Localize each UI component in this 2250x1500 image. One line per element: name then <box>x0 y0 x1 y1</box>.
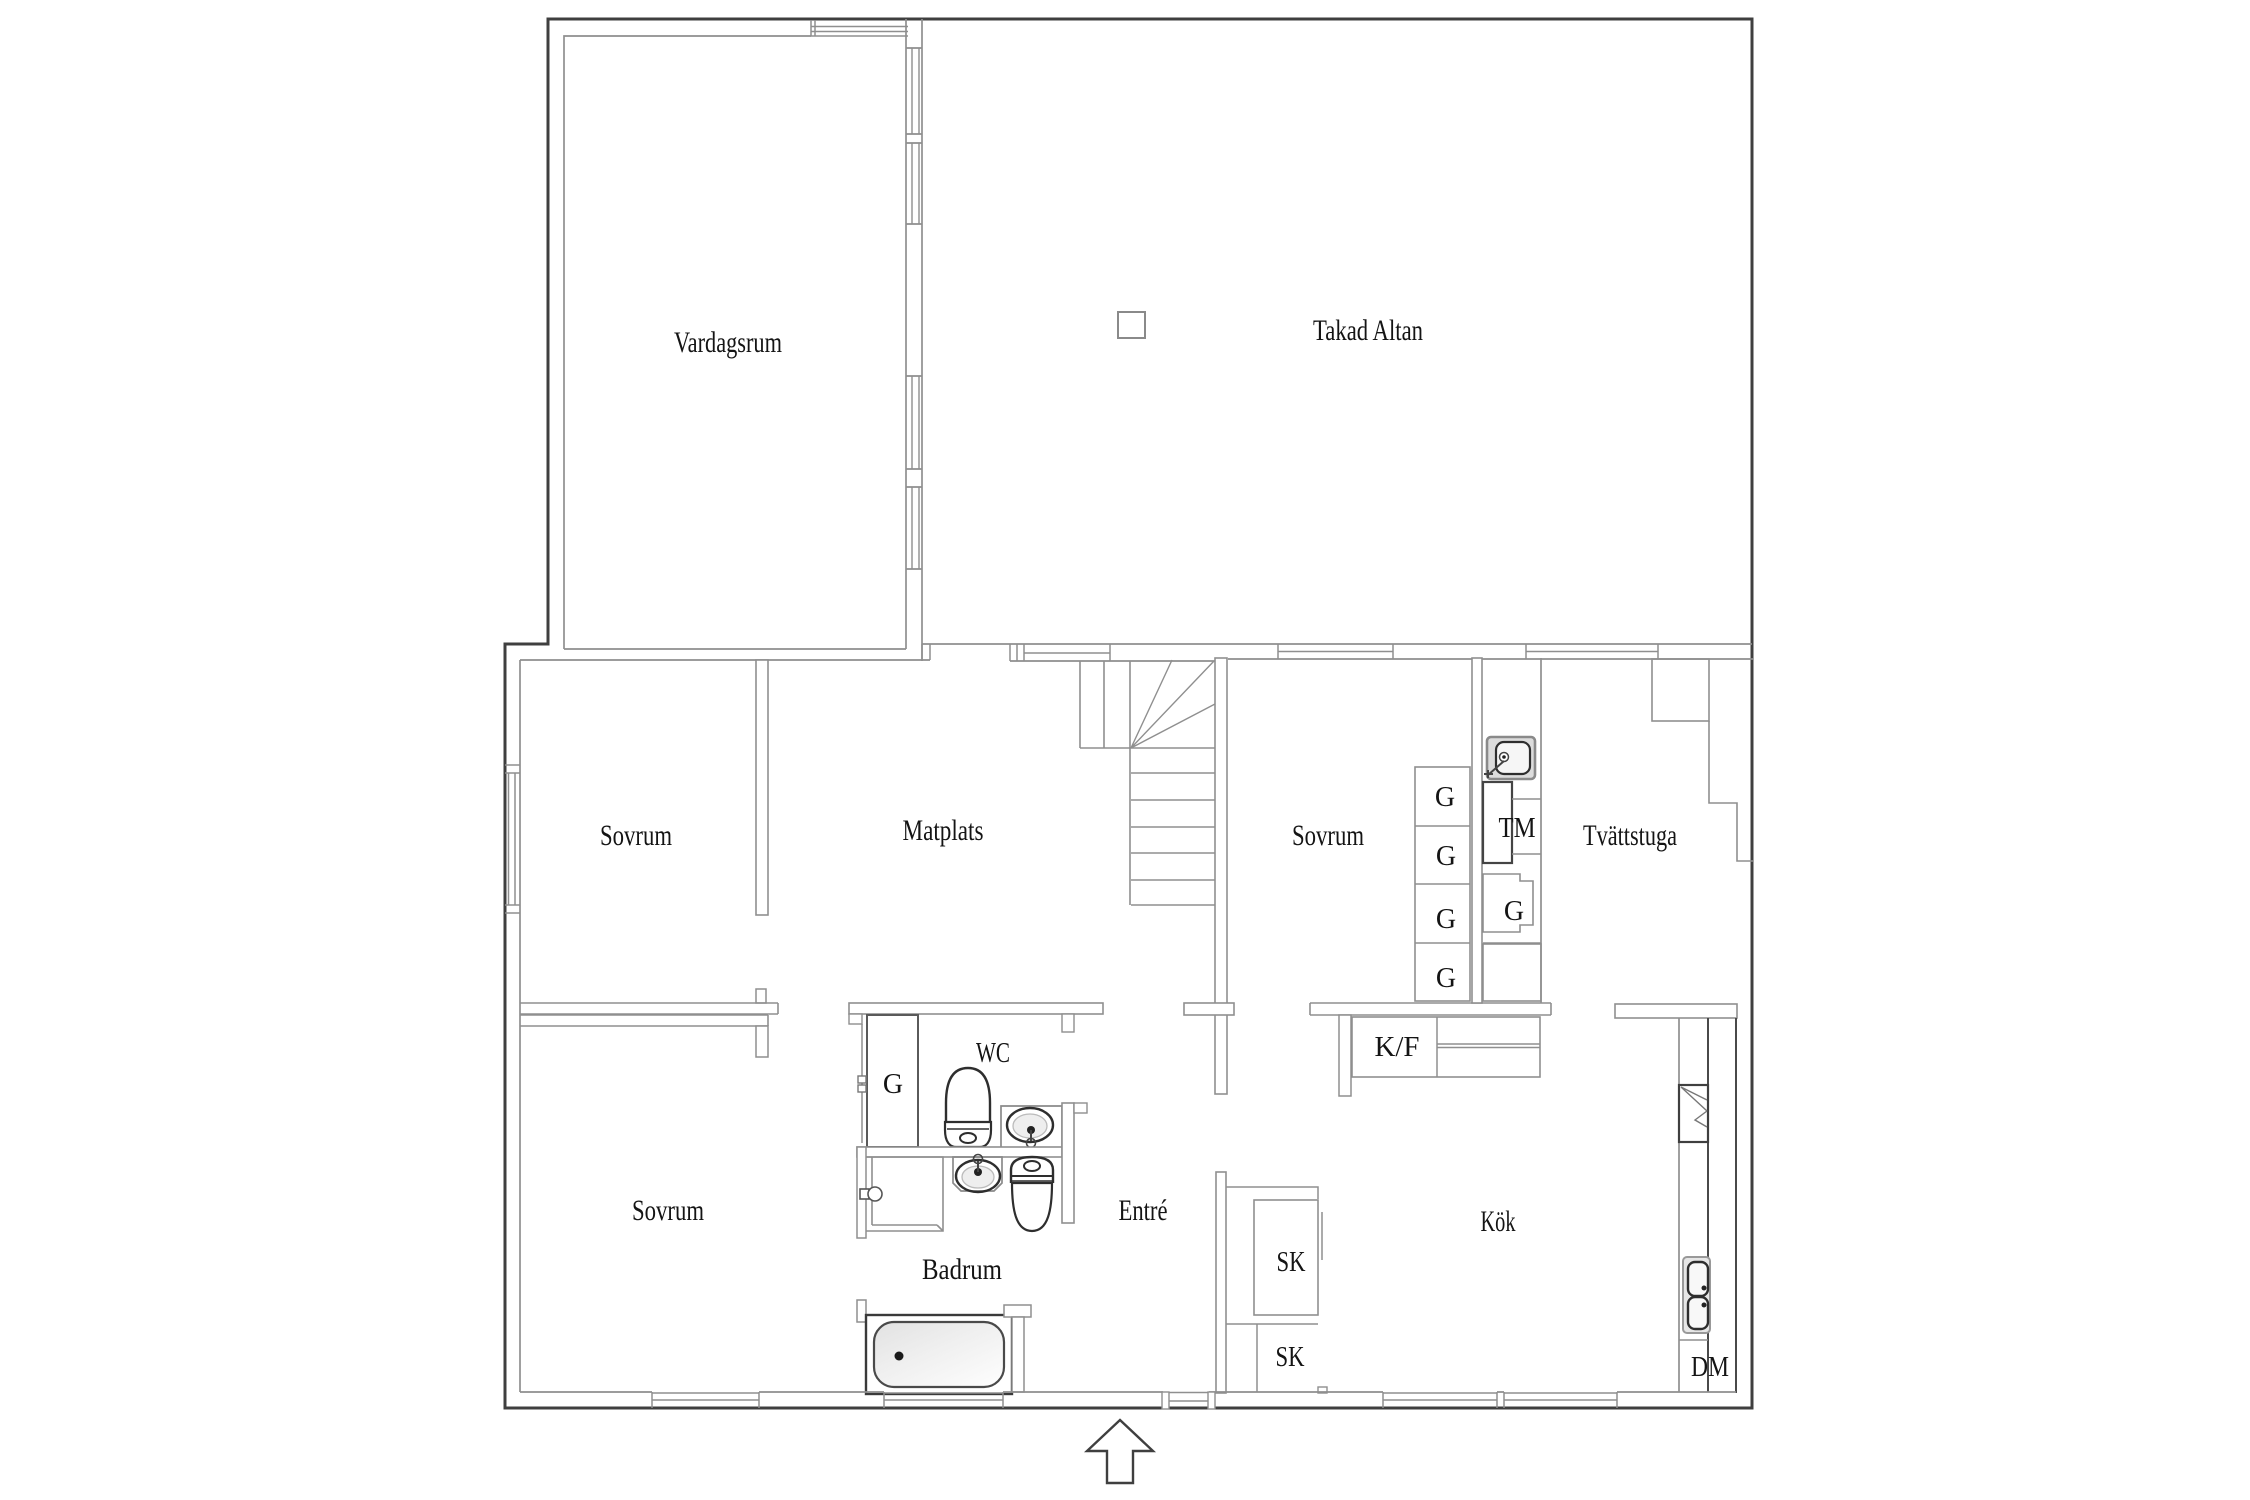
svg-text:G: G <box>1436 963 1456 994</box>
svg-text:Vardagsrum: Vardagsrum <box>674 326 782 359</box>
svg-text:Takad Altan: Takad Altan <box>1313 314 1423 347</box>
svg-text:TM: TM <box>1499 813 1536 844</box>
svg-text:K/F: K/F <box>1375 1032 1420 1063</box>
svg-text:Tvättstuga: Tvättstuga <box>1583 819 1677 852</box>
svg-text:SK: SK <box>1277 1247 1306 1278</box>
svg-text:Badrum: Badrum <box>922 1253 1002 1286</box>
svg-text:Matplats: Matplats <box>903 814 984 847</box>
svg-text:Sovrum: Sovrum <box>1292 819 1364 852</box>
svg-text:DM: DM <box>1691 1352 1729 1383</box>
svg-text:WC: WC <box>976 1038 1010 1069</box>
svg-text:Kök: Kök <box>1481 1205 1516 1238</box>
svg-text:G: G <box>1504 896 1524 927</box>
svg-text:G: G <box>1436 841 1456 872</box>
svg-text:Sovrum: Sovrum <box>600 819 672 852</box>
svg-text:G: G <box>1435 782 1455 813</box>
svg-text:Sovrum: Sovrum <box>632 1194 704 1227</box>
svg-text:G: G <box>883 1069 903 1100</box>
svg-text:SK: SK <box>1276 1342 1305 1373</box>
svg-text:Entré: Entré <box>1119 1194 1168 1227</box>
svg-text:G: G <box>1436 904 1456 935</box>
